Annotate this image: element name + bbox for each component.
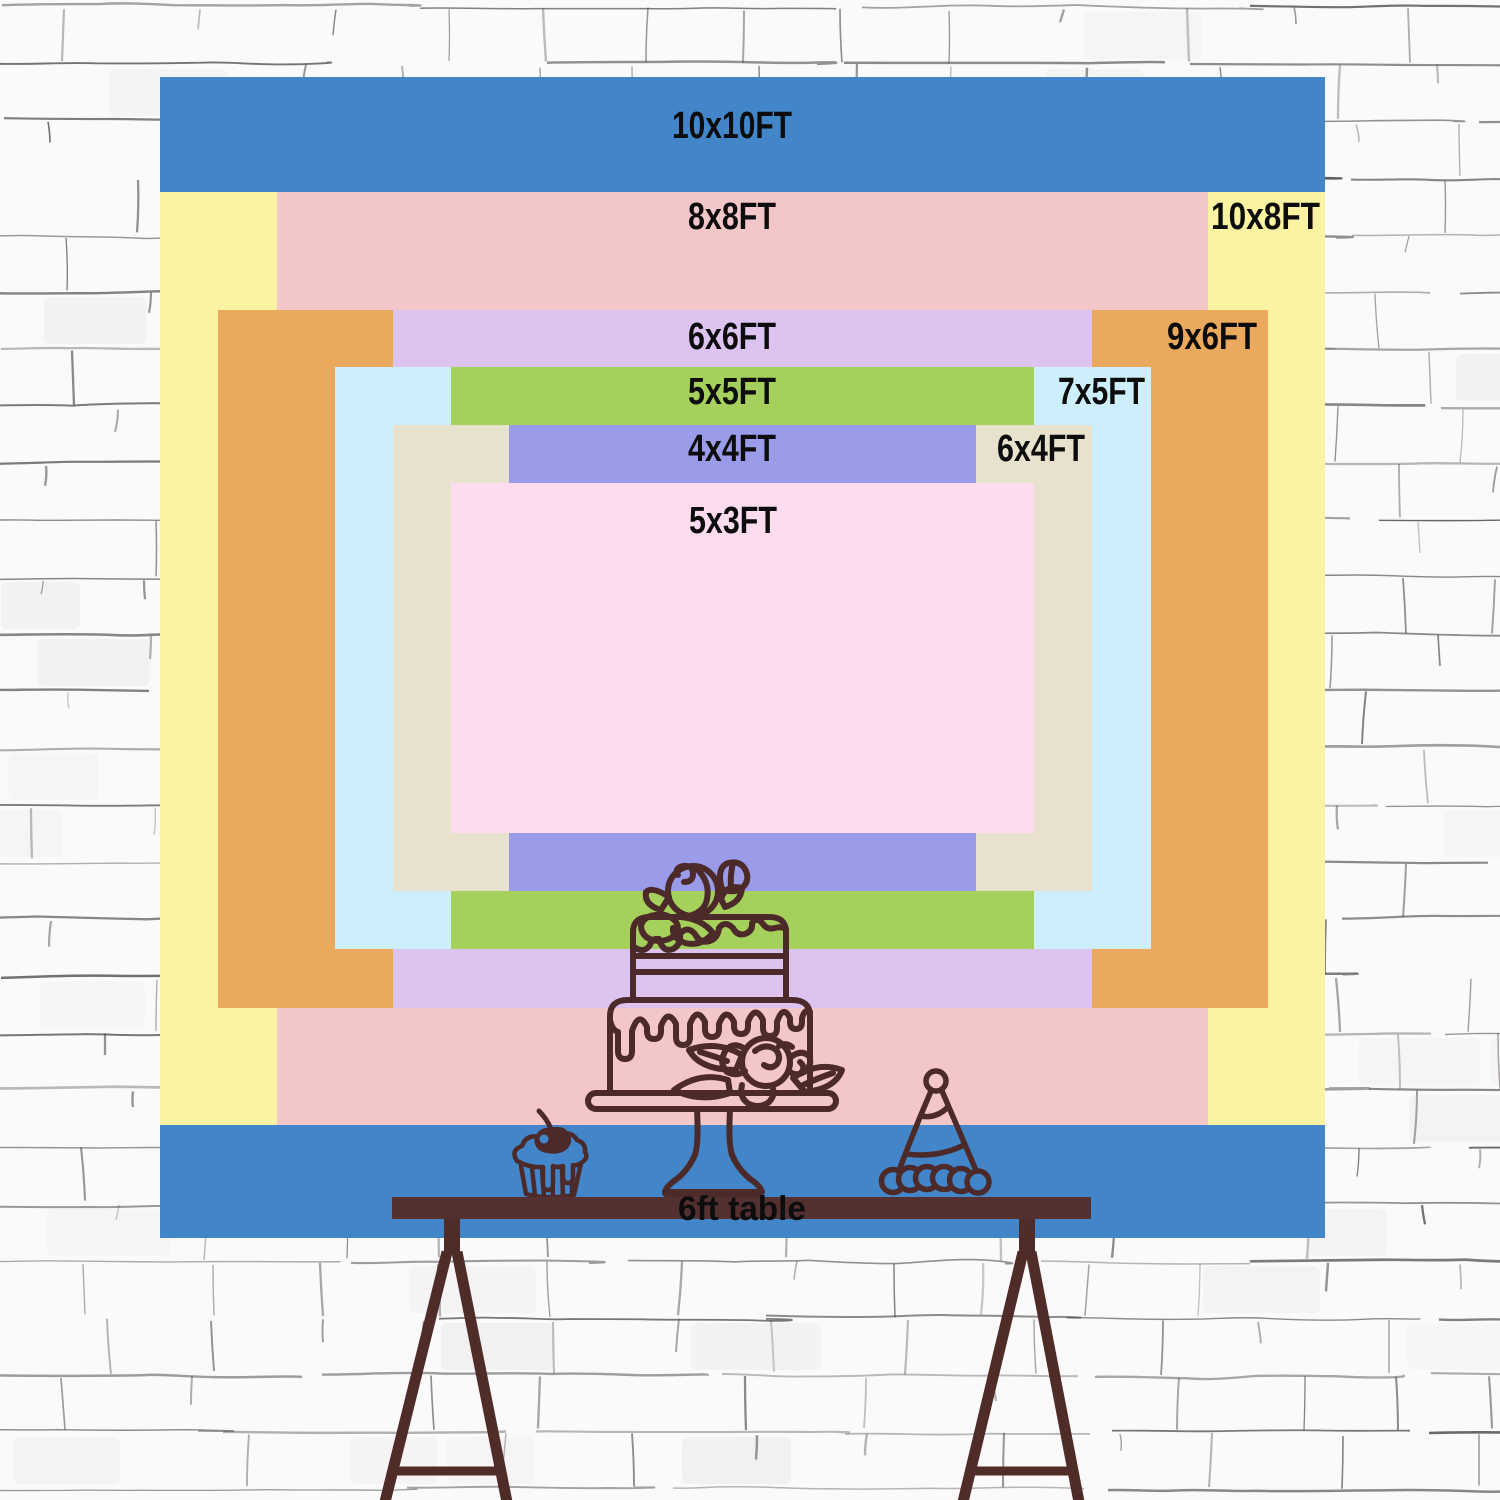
svg-text:6ft table: 6ft table bbox=[678, 1190, 806, 1228]
svg-text:7x5FT: 7x5FT bbox=[1058, 371, 1145, 413]
svg-text:5x3FT: 5x3FT bbox=[689, 500, 777, 542]
svg-text:6x4FT: 6x4FT bbox=[997, 428, 1085, 470]
svg-text:4x4FT: 4x4FT bbox=[688, 428, 776, 470]
svg-text:9x6FT: 9x6FT bbox=[1167, 316, 1257, 358]
svg-text:6x6FT: 6x6FT bbox=[688, 316, 776, 358]
svg-text:10x10FT: 10x10FT bbox=[672, 105, 792, 147]
svg-text:8x8FT: 8x8FT bbox=[688, 196, 776, 238]
svg-text:10x8FT: 10x8FT bbox=[1211, 196, 1320, 238]
svg-text:5x5FT: 5x5FT bbox=[688, 371, 776, 413]
